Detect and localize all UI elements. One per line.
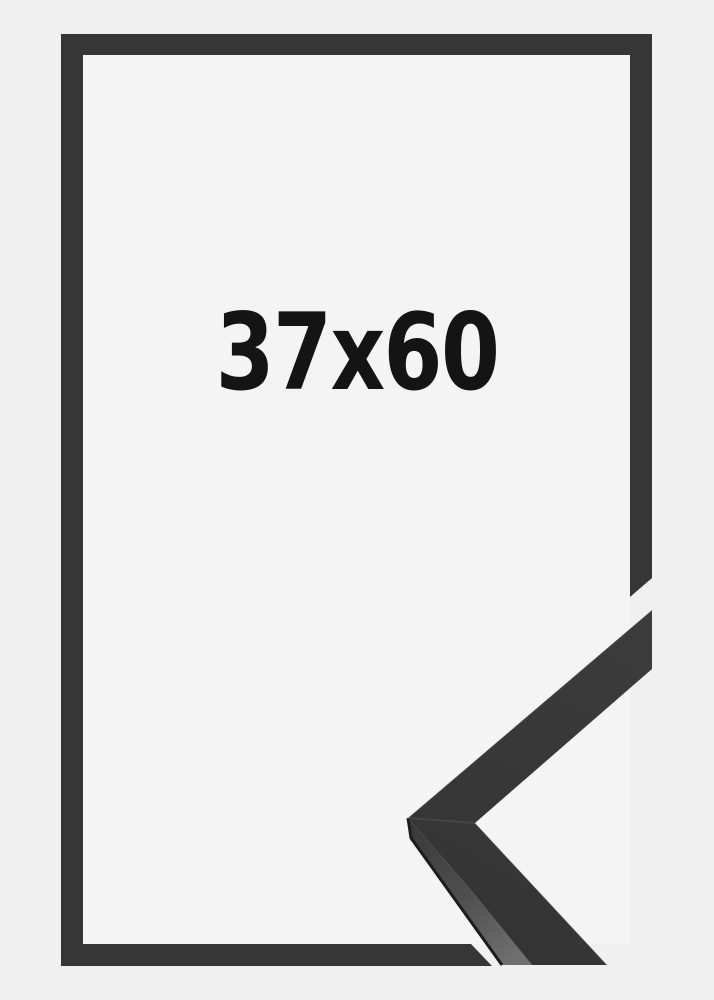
size-label: 37x60	[71, 300, 642, 406]
frame-outline-top-bar	[61, 34, 652, 55]
frame-outline-bottom-bar	[61, 944, 492, 966]
frame-graphic	[0, 0, 714, 1000]
product-image-canvas: 37x60	[0, 0, 714, 1000]
frame-interior	[83, 55, 630, 944]
frame-outline-left-bar	[61, 34, 83, 966]
